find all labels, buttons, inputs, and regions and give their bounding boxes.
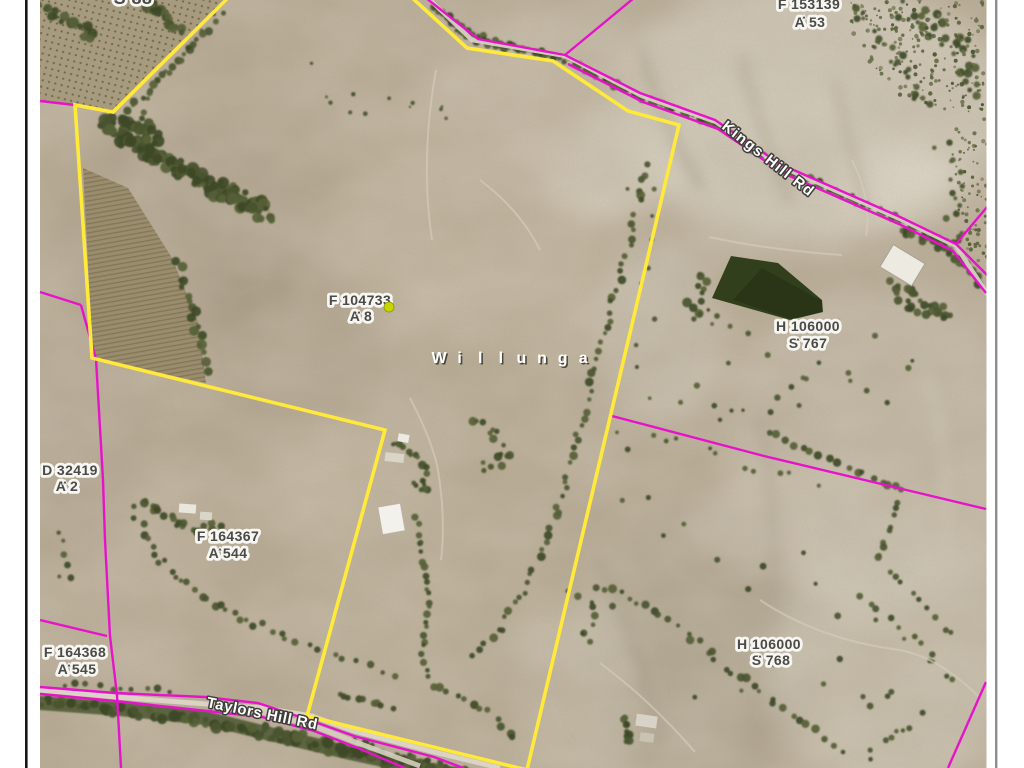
svg-text:g: g bbox=[558, 350, 568, 367]
svg-text:n: n bbox=[537, 350, 547, 367]
svg-text:S 768: S 768 bbox=[752, 652, 791, 668]
svg-text:D 32419: D 32419 bbox=[42, 462, 98, 478]
svg-text:F 164368: F 164368 bbox=[44, 644, 106, 660]
svg-text:A 545: A 545 bbox=[58, 661, 97, 677]
svg-text:l: l bbox=[478, 350, 482, 367]
svg-text:F 153139: F 153139 bbox=[778, 0, 840, 12]
svg-text:i: i bbox=[457, 350, 461, 367]
svg-text:A 8: A 8 bbox=[350, 308, 372, 324]
svg-text:S 88: S 88 bbox=[114, 0, 153, 8]
svg-text:A 53: A 53 bbox=[795, 14, 826, 30]
svg-text:A 2: A 2 bbox=[56, 478, 78, 494]
svg-text:W: W bbox=[431, 350, 447, 367]
svg-text:a: a bbox=[579, 350, 588, 367]
svg-text:l: l bbox=[499, 350, 503, 367]
svg-text:H 106000: H 106000 bbox=[737, 636, 801, 652]
svg-text:S 767: S 767 bbox=[789, 335, 828, 351]
svg-text:F 104733: F 104733 bbox=[329, 292, 391, 308]
svg-text:F 164367: F 164367 bbox=[197, 528, 259, 544]
svg-text:H 106000: H 106000 bbox=[776, 318, 840, 334]
svg-text:A 544: A 544 bbox=[209, 545, 248, 561]
svg-text:u: u bbox=[517, 350, 527, 367]
